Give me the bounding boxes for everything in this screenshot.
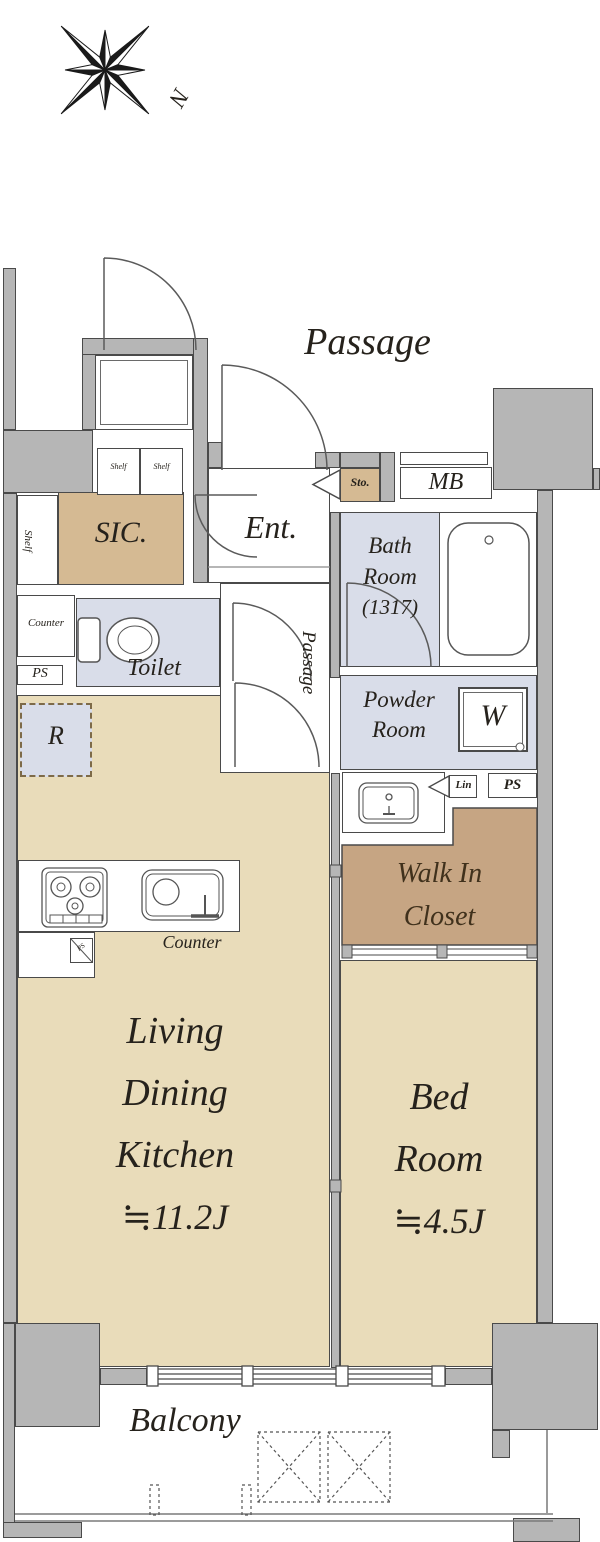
balcony-post-1 xyxy=(150,1485,159,1515)
powder-room-label: Powder Room xyxy=(342,685,456,745)
bath-room-label: Bath Room (1317) xyxy=(338,530,442,623)
wall-ldk-bedroom xyxy=(331,773,340,1368)
compass-north-label: N xyxy=(163,84,194,111)
wall-left-band xyxy=(3,430,93,493)
wall-entry-top-right xyxy=(315,452,340,468)
mb-label: MB xyxy=(400,469,492,495)
wall-pillar-top-right-ext xyxy=(593,468,600,490)
shelf-label-1: Shelf xyxy=(97,463,140,472)
wall-left-top xyxy=(3,268,16,430)
wall-vestibule-right xyxy=(193,338,208,583)
wall-rail-right xyxy=(513,1518,580,1542)
kitchen-counter-box xyxy=(18,860,240,932)
ldk-label: Living Dining Kitchen ≒11.2J xyxy=(55,1000,295,1248)
wall-rail-left xyxy=(3,1522,82,1538)
refrigerator-label: R xyxy=(20,722,92,751)
wall-pillar-bottom-right xyxy=(492,1323,598,1430)
compass-rose-icon xyxy=(61,26,149,114)
vestibule-inner-line xyxy=(100,360,188,425)
wall-under-window-right xyxy=(445,1368,492,1385)
wall-finger-bottom-right xyxy=(492,1430,510,1458)
vestibule-box xyxy=(95,355,193,430)
balcony-label: Balcony xyxy=(100,1402,270,1439)
wall-vestibule-top xyxy=(82,338,208,355)
wall-right-main xyxy=(537,490,553,1323)
door-entrance xyxy=(222,365,327,470)
passage-top-label: Passage xyxy=(290,322,445,364)
ps-right-label: PS xyxy=(488,777,537,794)
powder-sink-box xyxy=(342,772,445,833)
door-top-left xyxy=(104,258,196,350)
wall-pillar-top-right xyxy=(493,388,593,490)
wall-left-low xyxy=(3,1323,15,1529)
toilet-counter-label: Counter xyxy=(17,617,75,629)
passage-vertical-label: Passage xyxy=(297,610,318,715)
closet-track xyxy=(342,945,537,958)
wall-under-window-left xyxy=(100,1368,147,1385)
wall-left-main xyxy=(3,493,17,1323)
kitchen-counter-label: Counter xyxy=(148,933,236,953)
washer-label: W xyxy=(458,699,528,732)
toilet-label: Toilet xyxy=(90,655,218,681)
ac-unit-spaces xyxy=(150,1432,390,1515)
wall-pillar-bottom-left xyxy=(15,1323,100,1427)
balcony-post-2 xyxy=(242,1485,251,1515)
bedroom-label: Bed Room ≒4.5J xyxy=(343,1066,535,1252)
shelf-side-label: Shelf xyxy=(22,505,34,577)
walk-in-closet-label: Walk In Closet xyxy=(342,852,537,938)
wall-storage-top xyxy=(340,452,380,468)
mb-strip-box xyxy=(400,452,488,465)
wall-storage-right xyxy=(380,452,395,502)
ent-label: Ent. xyxy=(215,510,327,545)
floor-plan: N Passage Shelf Shelf Shelf SIC. Ent. St… xyxy=(0,0,600,1542)
shelf-label-2: Shelf xyxy=(140,463,183,472)
sto-label: Sto. xyxy=(340,476,380,489)
balcony-rails xyxy=(15,1430,553,1521)
lin-label: Lin xyxy=(450,779,477,791)
windows-bottom xyxy=(147,1366,445,1386)
sic-label: SIC. xyxy=(58,516,184,549)
wall-entry-step xyxy=(208,442,222,468)
toilet-ps-label: PS xyxy=(17,666,63,681)
